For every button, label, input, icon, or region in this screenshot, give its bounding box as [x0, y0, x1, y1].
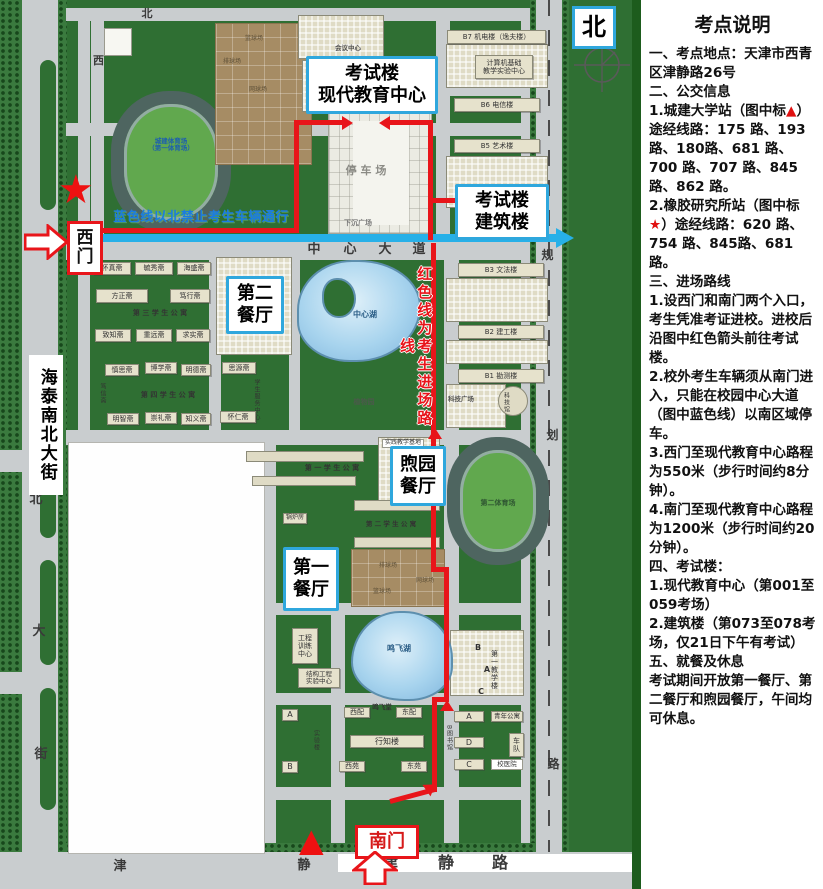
red-arrowhead-right [342, 116, 353, 130]
dorm-huairen: 怀仁斋 [220, 411, 256, 423]
stadium-1-field [124, 104, 218, 220]
dorm-chongli: 崇礼斋 [145, 412, 177, 424]
screenshot-frame: ★ ▲ 考试楼 现代教育中心考试楼 建筑楼第二 餐厅煦园 餐厅第一 餐厅西 门南… [0, 0, 823, 889]
info-panel: 考点说明 一、考点地点：天津市西青区津静路26号二、公交信息1.城建大学站（图中… [632, 0, 823, 889]
apartment-bar [252, 476, 356, 486]
label-court-tennis-s: 网球场 [413, 577, 437, 585]
char-west-road: 西 [92, 55, 105, 68]
dorm-fangzheng: 方正斋 [96, 289, 148, 303]
label-botanical: 植物园 [350, 398, 378, 407]
panel-paragraph: 五、就餐及休息 [649, 653, 816, 672]
bldg-b1-kance: B1 勘测楼 [458, 369, 544, 383]
panel-paragraph: 2.建筑楼（第073至078考场，仅21日下午有考试） [649, 615, 816, 653]
bldg-block-a-west: A [282, 709, 298, 721]
bldg-structural-lab: 结构工程 实验中心 [298, 668, 340, 688]
char-east-road-lu: 路 [546, 757, 561, 772]
label-court-basketball-n: 篮球场 [242, 35, 266, 43]
panel-paragraph: 3.西门至现代教育中心路程为550米（步行时间约8分钟）。 [649, 444, 816, 501]
undeveloped-area [68, 442, 265, 854]
char-avenue-xin: 心 [342, 243, 358, 258]
panel-paragraph: 2.校外考生车辆须从南门进入，只能在校园中心大道（图中蓝色线）以南区域停车。 [649, 368, 816, 444]
panel-text: 2.橡胶研究所站（图中标 [649, 198, 800, 214]
panel-paragraph: 1.设西门和南门两个入口，考生凭准考证进校。进校后沿图中红色箭头前往考试楼。 [649, 292, 816, 368]
label-west-gate: 西 门 [67, 221, 103, 275]
label-library: B图书馆 [443, 718, 453, 758]
label-court-basketball-s: 篮球场 [370, 588, 394, 596]
panel-paragraph: 2.橡胶研究所站（图中标★）途经线路：620 路、754 路、845路、681路… [649, 197, 816, 273]
dorm-boxue: 博学斋 [145, 362, 177, 374]
panel-text: 3.西门至现代教育中心路程为550米（步行时间约8分钟）。 [649, 445, 813, 499]
dorm-yuxiu: 毓秀斋 [135, 262, 173, 275]
label-apartment-1: 第 一 学 生 公 寓 [294, 463, 370, 473]
dorm-zhizhi: 致知斋 [95, 329, 131, 342]
dorm-duxin: 笃信斋 [96, 378, 107, 408]
char-north-road: 北 [140, 8, 154, 21]
red-route-segment [390, 120, 430, 125]
label-science-plaza: 科技广场 [444, 395, 478, 404]
bldg-b6-dianxin: B6 电信楼 [454, 98, 540, 112]
char-east-road-gui: 规 [540, 248, 555, 263]
panel-text: 五、就餐及休息 [649, 654, 744, 670]
red-marker-glyph: ★ [649, 217, 661, 233]
panel-body: 考点说明 一、考点地点：天津市西青区津静路26号二、公交信息1.城建大学站（图中… [641, 0, 823, 889]
panel-text: ） [790, 635, 804, 651]
label-apartment-2: 第 二 学 生 公 寓 [356, 520, 426, 529]
bldg-xipei: 西配 [344, 707, 370, 718]
label-sunken-plaza: 下沉广场 [338, 219, 378, 228]
label-t1-a: A [481, 665, 493, 674]
label-court-volleyball-s: 排球场 [376, 562, 400, 570]
panel-paragraph: 1.现代教育中心（第001至059考场） [649, 577, 816, 615]
bldg-engineering-training: 工程 训练 中心 [292, 628, 318, 664]
bldg-xiyuan: 西苑 [339, 761, 365, 772]
char-street-jie: 街 [33, 747, 49, 763]
label-t1-c: C [475, 687, 487, 696]
red-marker-glyph: ▲ [786, 103, 796, 119]
east-courtyard-2 [446, 340, 548, 364]
bldg-dongpei: 东配 [396, 707, 422, 718]
label-stadium-1: 城建体育场 （第一体育场） [136, 136, 206, 154]
panel-paragraph: 4.南门至现代教育中心路程为1200米（步行时间约20分钟）。 [649, 501, 816, 558]
bldg-b7-jidian: B7 机电楼（逸夫楼） [447, 30, 546, 44]
panel-text: 三、进场路线 [649, 274, 731, 290]
panel-text: 考试期间开放第一餐厅、第二餐厅和煦园餐厅，午间均可休息。 [649, 673, 812, 727]
bldg-lib-a: A [454, 711, 484, 722]
label-blue-note: 蓝色线以北禁止考生车辆通行 [103, 210, 299, 226]
dorm-qiushi: 求实斋 [176, 329, 210, 342]
label-stadium-2: 第二体育场 [462, 498, 534, 508]
polygon [25, 226, 67, 258]
red-route-segment [428, 120, 433, 240]
bldg-block-b-west: B [282, 761, 298, 773]
char-south-road-jin: 津 [112, 860, 128, 875]
label-conference-center: 会议中心 [330, 44, 366, 53]
label-north: 北 [572, 6, 616, 49]
panel-paragraph: 四、考试楼： [649, 558, 816, 577]
bldg-youth-apartment: 青年公寓 [491, 711, 523, 722]
apartment-bar [354, 537, 440, 548]
dorm-siyuan: 思源斋 [222, 362, 256, 374]
line [602, 52, 615, 65]
south-gate-arrow-icon [352, 851, 398, 885]
campus-map: ★ ▲ 考试楼 现代教育中心考试楼 建筑楼第二 餐厅煦园 餐厅第一 餐厅西 门南… [0, 0, 632, 889]
char-avenue-dao: 道 [411, 243, 427, 258]
red-arrowhead-left [379, 116, 390, 130]
label-apartment-4: 第 四 学 生 公 寓 [128, 390, 208, 400]
panel-text: 1.设西门和南门两个入口，考生凭准考证进校。进校后沿图中红色箭头前往考试楼。 [649, 293, 813, 366]
red-route-segment [96, 228, 298, 233]
dorm-shensi: 慎思斋 [105, 364, 139, 376]
callout-exam-arch: 考试楼 建筑楼 [455, 184, 549, 240]
label-red-note: 红色线为考生进场路线 [404, 258, 426, 436]
red-route-segment [444, 567, 449, 700]
mingfei-lake [351, 611, 453, 701]
label-apartment-3: 第 三 学 生 公 寓 [120, 308, 200, 318]
bldg-lib-d: D [454, 737, 484, 748]
label-court-volleyball-n: 排球场 [220, 58, 244, 66]
callout-exam-main: 考试楼 现代教育中心 [306, 56, 438, 114]
bldg-lib-c: C [454, 759, 484, 770]
char-jinjing-jing: 静 [436, 855, 456, 872]
panel-paragraphs: 一、考点地点：天津市西青区津静路26号二、公交信息1.城建大学站（图中标▲）途经… [649, 45, 816, 729]
west-gate-arrow-icon [24, 224, 68, 260]
callout-canteen-1: 第一 餐厅 [283, 547, 339, 611]
bldg-boiler: 锅炉房 [283, 513, 307, 524]
panel-title: 考点说明 [649, 10, 816, 37]
char-jinjing-lu: 路 [490, 855, 510, 872]
teaching-1-complex [450, 630, 524, 696]
callout-canteen-2: 第二 餐厅 [226, 276, 284, 334]
panel-text: 1.城建大学站（图中标 [649, 103, 786, 119]
bldg-motorpool: 车 队 [509, 733, 524, 757]
red-route-segment [294, 120, 344, 125]
callout-canteen-xuyuan: 煦园 餐厅 [390, 446, 446, 506]
red-arrowhead-up [440, 700, 454, 711]
panel-text: 1.现代教育中心（第001至059考场） [649, 578, 814, 613]
blue-route-arrowhead [556, 228, 574, 248]
bldg-b3-wenfa: B3 文法楼 [458, 263, 544, 277]
bold-note-text: 仅21日下午有考试 [676, 635, 790, 651]
panel-text: 一、考点地点：天津市西青区津静路26号 [649, 46, 812, 81]
panel-paragraph: 二、公交信息 [649, 83, 816, 102]
bldg-dongyuan: 东苑 [401, 761, 427, 772]
panel-text: 二、公交信息 [649, 84, 731, 100]
panel-green-strip [632, 0, 641, 889]
street-label-haitai: 海泰南北大街 [29, 355, 63, 495]
char-street-da: 大 [31, 624, 47, 640]
panel-paragraph: 1.城建大学站（图中标▲）途经线路：175 路、193 路、180路、681 路… [649, 102, 816, 197]
red-route-segment [432, 697, 437, 792]
polygon [354, 852, 396, 884]
char-south-road-jing: 静 [296, 859, 312, 874]
science-plaza-block [446, 384, 506, 428]
label-mingfei-lake: 鸣飞湖 [384, 644, 414, 654]
label-science-museum: 科技馆 [500, 387, 510, 417]
panel-paragraph: 三、进场路线 [649, 273, 816, 292]
east-courtyard-1 [446, 278, 548, 322]
label-mingfei-hall: 鸣飞堂 [369, 704, 395, 712]
char-avenue-zhong: 中 [306, 243, 322, 258]
bldg-b5-yishu: B5 艺术楼 [454, 139, 540, 153]
panel-text: 2.校外考生车辆须从南门进入，只能在校园中心大道（图中蓝色线）以南区域停车。 [649, 369, 813, 442]
bldg-xingzhi: 行知楼 [350, 735, 424, 748]
panel-text: ）途经线路：620 路、754 路、845路、681路。 [649, 217, 803, 271]
panel-paragraph: 考试期间开放第一餐厅、第二餐厅和煦园餐厅，午间均可休息。 [649, 672, 816, 729]
dorm-mingzhi: 明智斋 [107, 413, 139, 425]
char-avenue-da: 大 [377, 243, 393, 258]
panel-text: 四、考试楼： [649, 559, 731, 575]
label-t1-b: B [472, 643, 484, 652]
dorm-haisheng: 海盛斋 [177, 262, 211, 275]
dorm-mingde: 明德斋 [181, 364, 211, 376]
panel-text: 4.南门至现代教育中心路程为1200米（步行时间约20分钟）。 [649, 502, 815, 556]
label-central-lake: 中心湖 [350, 310, 380, 320]
bus-stop-triangle-marker: ▲ [299, 824, 324, 856]
label-lab-building: 实验楼 [310, 726, 320, 754]
bldg-hospital: 校医院 [491, 759, 523, 770]
panel-paragraph: 一、考点地点：天津市西青区津静路26号 [649, 45, 816, 83]
char-east-road-hua: 划 [545, 428, 560, 443]
bldg-computer-center: 计算机基础 教学实验中心 [475, 55, 533, 79]
dorm-zhiyi: 知义斋 [181, 413, 211, 425]
apartment-bar [246, 451, 364, 462]
label-court-tennis-n: 网球场 [246, 86, 270, 94]
label-parking: 停 车 场 [342, 164, 390, 178]
bus-stop-star-marker: ★ [58, 170, 94, 210]
bldg-b2-jiangong: B2 建工楼 [458, 325, 544, 339]
dorm-duxing: 笃行斋 [170, 289, 210, 303]
dorm-zhongyuan: 重远斋 [136, 329, 172, 342]
small-building-nw [104, 28, 132, 56]
